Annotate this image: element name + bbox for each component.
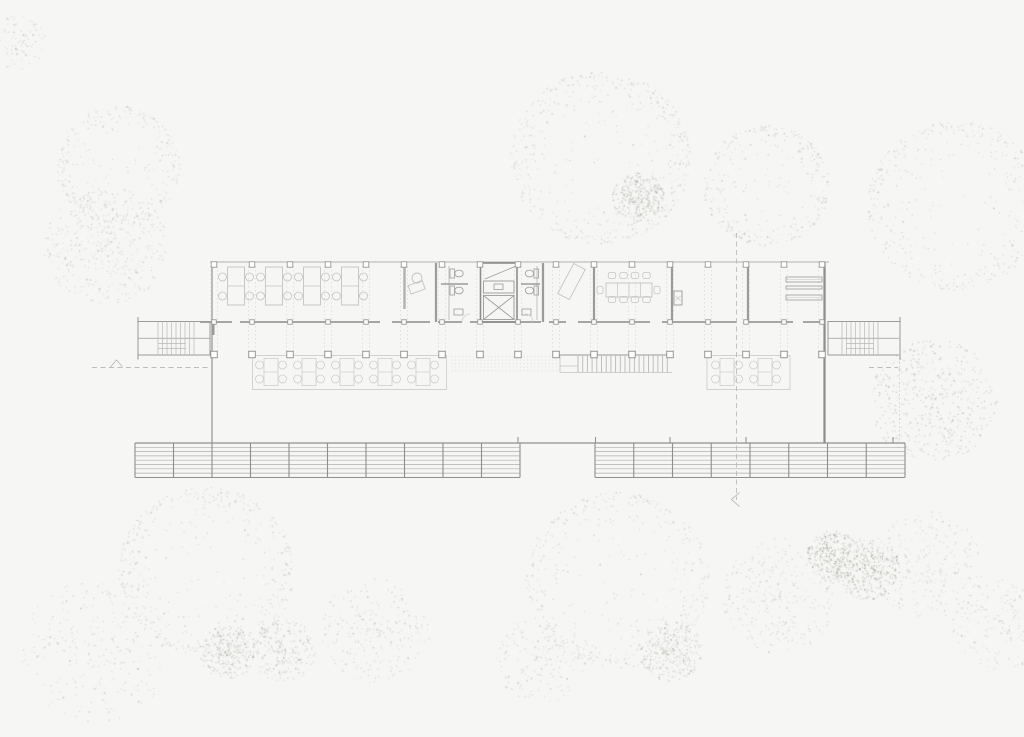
column-colonnade-row <box>287 351 294 358</box>
terrace-chair <box>256 361 264 369</box>
toilet-bowl <box>525 287 533 294</box>
column-colonnade-row <box>819 351 826 358</box>
section-arrow-left <box>111 360 123 367</box>
column-colonnade-row <box>211 351 218 358</box>
column-colonnade-row <box>401 351 408 358</box>
terrace-chair <box>355 375 363 383</box>
column-top-row <box>553 262 559 268</box>
desk-chair <box>360 292 368 300</box>
desk-chair <box>333 273 341 281</box>
terrace-chair <box>279 375 287 383</box>
terrace-chair <box>332 361 340 369</box>
terrace-chair <box>431 375 439 383</box>
desk-chair <box>246 273 254 281</box>
reception-desk <box>408 281 425 295</box>
floor-plan-canvas <box>0 0 1024 737</box>
column-wall-row <box>630 320 635 325</box>
section-arrow-vertical <box>732 493 740 507</box>
column-wall-row <box>782 320 787 325</box>
column-wall-row <box>212 320 217 325</box>
desk-chair <box>246 292 254 300</box>
column-wall-row <box>288 320 293 325</box>
desk-chair <box>257 273 265 281</box>
column-top-row <box>211 262 217 268</box>
column-wall-row <box>402 320 407 325</box>
terrace-chair <box>332 375 340 383</box>
column-top-row <box>439 262 445 268</box>
column-wall-row <box>744 320 749 325</box>
core-diagonal <box>485 267 515 280</box>
toilet-bowl <box>455 270 463 277</box>
terrace-chair <box>750 361 758 369</box>
desk-chair <box>333 292 341 300</box>
column-wall-row <box>668 320 673 325</box>
column-colonnade-row <box>743 351 750 358</box>
desk-chair <box>295 273 303 281</box>
column-top-row <box>249 262 255 268</box>
machine-unit <box>494 284 503 290</box>
entry-steps <box>556 355 672 373</box>
terrace-chair <box>735 375 743 383</box>
terrace-chair <box>712 375 720 383</box>
meeting-chair <box>620 273 628 279</box>
meeting-chair <box>631 273 639 279</box>
desk-chair <box>284 292 292 300</box>
terrace-chair <box>317 375 325 383</box>
column-wall-row <box>250 320 255 325</box>
meeting-chair <box>608 273 616 279</box>
column-top-row <box>667 262 673 268</box>
desk-chair <box>360 273 368 281</box>
terrace-chair <box>431 361 439 369</box>
shelf-unit <box>786 286 822 289</box>
planting-hatch <box>452 356 556 373</box>
column-top-row <box>705 262 711 268</box>
toilet-bowl <box>525 270 533 277</box>
sink <box>454 309 463 315</box>
column-colonnade-row <box>515 351 522 358</box>
column-top-row <box>781 262 787 268</box>
column-colonnade-row <box>439 351 446 358</box>
terrace-chair <box>773 375 781 383</box>
column-top-row <box>363 262 369 268</box>
column-wall-row <box>478 320 483 325</box>
column-wall-row <box>820 320 825 325</box>
building-plan-layer <box>0 0 1024 737</box>
desk-chair <box>295 292 303 300</box>
toilet-tank <box>534 286 539 295</box>
terrace-chair <box>750 375 758 383</box>
terrace-outline <box>707 356 790 390</box>
office-desks <box>219 267 426 305</box>
column-top-row <box>819 262 825 268</box>
terrace-chair <box>735 361 743 369</box>
toilet-tank <box>534 269 539 278</box>
column-top-row <box>591 262 597 268</box>
structural-grid <box>211 266 826 352</box>
column-colonnade-row <box>667 351 674 358</box>
desk-chair <box>219 273 227 281</box>
terrace-layer <box>253 356 791 390</box>
machine-room <box>484 281 515 293</box>
core-walls <box>481 263 518 322</box>
terrace-chair <box>408 361 416 369</box>
toilet-tank <box>450 269 455 278</box>
column-colonnade-row <box>705 351 712 358</box>
terrace-chair <box>393 361 401 369</box>
column-wall-row <box>440 320 445 325</box>
terrace-chair <box>256 375 264 383</box>
section-markers <box>92 233 900 507</box>
terrace-chair <box>317 361 325 369</box>
terrace-chair <box>370 375 378 383</box>
column-colonnade-row <box>629 351 636 358</box>
column-colonnade-row <box>477 351 484 358</box>
column-wall-row <box>554 320 559 325</box>
louver-deck-band <box>135 437 905 478</box>
desk-chair <box>257 292 265 300</box>
terrace-chair <box>294 361 302 369</box>
terrace-chair <box>279 361 287 369</box>
terrace-chair <box>773 361 781 369</box>
elevator-core <box>481 263 518 322</box>
desk-chair <box>284 273 292 281</box>
column-colonnade-row <box>363 351 370 358</box>
column-top-row <box>477 262 483 268</box>
column-top-row <box>515 262 521 268</box>
column-wall-row <box>364 320 369 325</box>
terrace-chair <box>370 361 378 369</box>
column-wall-row <box>592 320 597 325</box>
terrace-chair <box>393 375 401 383</box>
column-top-row <box>743 262 749 268</box>
terrace-outline <box>253 356 447 390</box>
column-wall-row <box>516 320 521 325</box>
meeting-chair <box>643 273 651 279</box>
column-top-row <box>325 262 331 268</box>
column-top-row <box>401 262 407 268</box>
terrace-chair <box>408 375 416 383</box>
column-top-row <box>629 262 635 268</box>
column-colonnade-row <box>781 351 788 358</box>
meeting-chair <box>597 286 603 294</box>
terrace-chair <box>294 375 302 383</box>
desk-chair <box>322 292 330 300</box>
meeting-chair <box>654 286 660 294</box>
column-colonnade-row <box>591 351 598 358</box>
toilet-tank <box>450 286 455 295</box>
lounge-daybed <box>558 263 585 299</box>
column-top-row <box>287 262 293 268</box>
terrace-chair <box>712 361 720 369</box>
desk-chair <box>322 273 330 281</box>
terrace-chair <box>355 361 363 369</box>
column-colonnade-row <box>325 351 332 358</box>
columns <box>211 262 826 358</box>
column-wall-row <box>706 320 711 325</box>
column-colonnade-row <box>249 351 256 358</box>
desk-chair <box>219 292 227 300</box>
column-wall-row <box>326 320 331 325</box>
toilet-bowl <box>455 287 463 294</box>
column-colonnade-row <box>553 351 560 358</box>
